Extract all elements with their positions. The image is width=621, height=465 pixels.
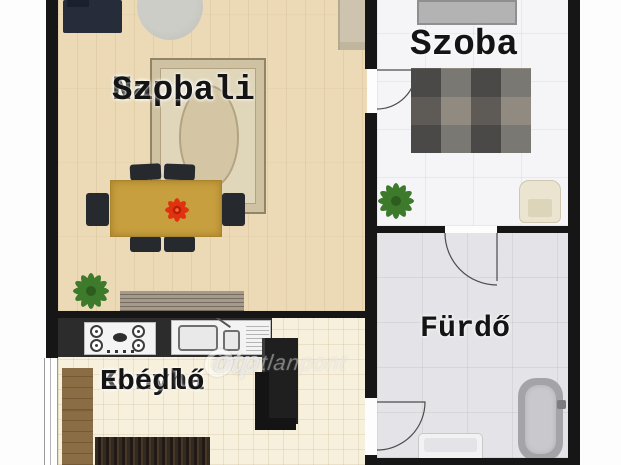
plant-icon	[376, 181, 416, 221]
stove	[84, 322, 156, 355]
watermark: otp ingatlanpont	[202, 344, 477, 382]
stove-control	[113, 333, 127, 342]
bed	[417, 0, 517, 25]
bath-faucet	[557, 400, 566, 409]
wall	[365, 458, 580, 465]
dining-chair	[86, 193, 109, 226]
dining-chair	[164, 163, 196, 180]
window	[44, 358, 58, 465]
dining-chair	[222, 193, 245, 226]
cabinet-base	[268, 418, 296, 430]
armchair	[519, 180, 561, 223]
living-room-label-line2: Szoba	[112, 70, 214, 112]
wall	[46, 311, 377, 318]
floorplan: Nappali Szoba Szoba Fürdő Konyha Ebédlő …	[0, 0, 621, 465]
wardrobe	[338, 0, 367, 50]
burner-icon	[90, 325, 103, 338]
stove-knobs	[107, 350, 135, 353]
kitchen-label-line2: Ebédlő	[100, 367, 204, 396]
flower-centerpiece-icon	[163, 196, 191, 224]
burner-icon	[90, 339, 103, 352]
bathtub	[518, 378, 563, 461]
plant-icon	[71, 271, 111, 311]
bathroom-label: Fürdő	[405, 313, 525, 345]
tv-bench	[120, 291, 244, 311]
bedroom-label: Szoba	[390, 26, 538, 64]
sofa-cushion	[67, 0, 89, 7]
wood-cabinet	[62, 368, 93, 465]
dining-chair	[130, 236, 161, 252]
wall	[46, 0, 58, 360]
kitchen-rug	[95, 437, 210, 465]
patchwork-rug	[411, 68, 531, 153]
watermark-suffix: ingatlanpont	[213, 350, 349, 376]
burner-icon	[132, 325, 145, 338]
wall	[367, 226, 445, 233]
wall	[365, 0, 377, 69]
dining-chair	[130, 163, 162, 181]
dining-chair	[164, 236, 195, 252]
wall	[497, 226, 580, 233]
